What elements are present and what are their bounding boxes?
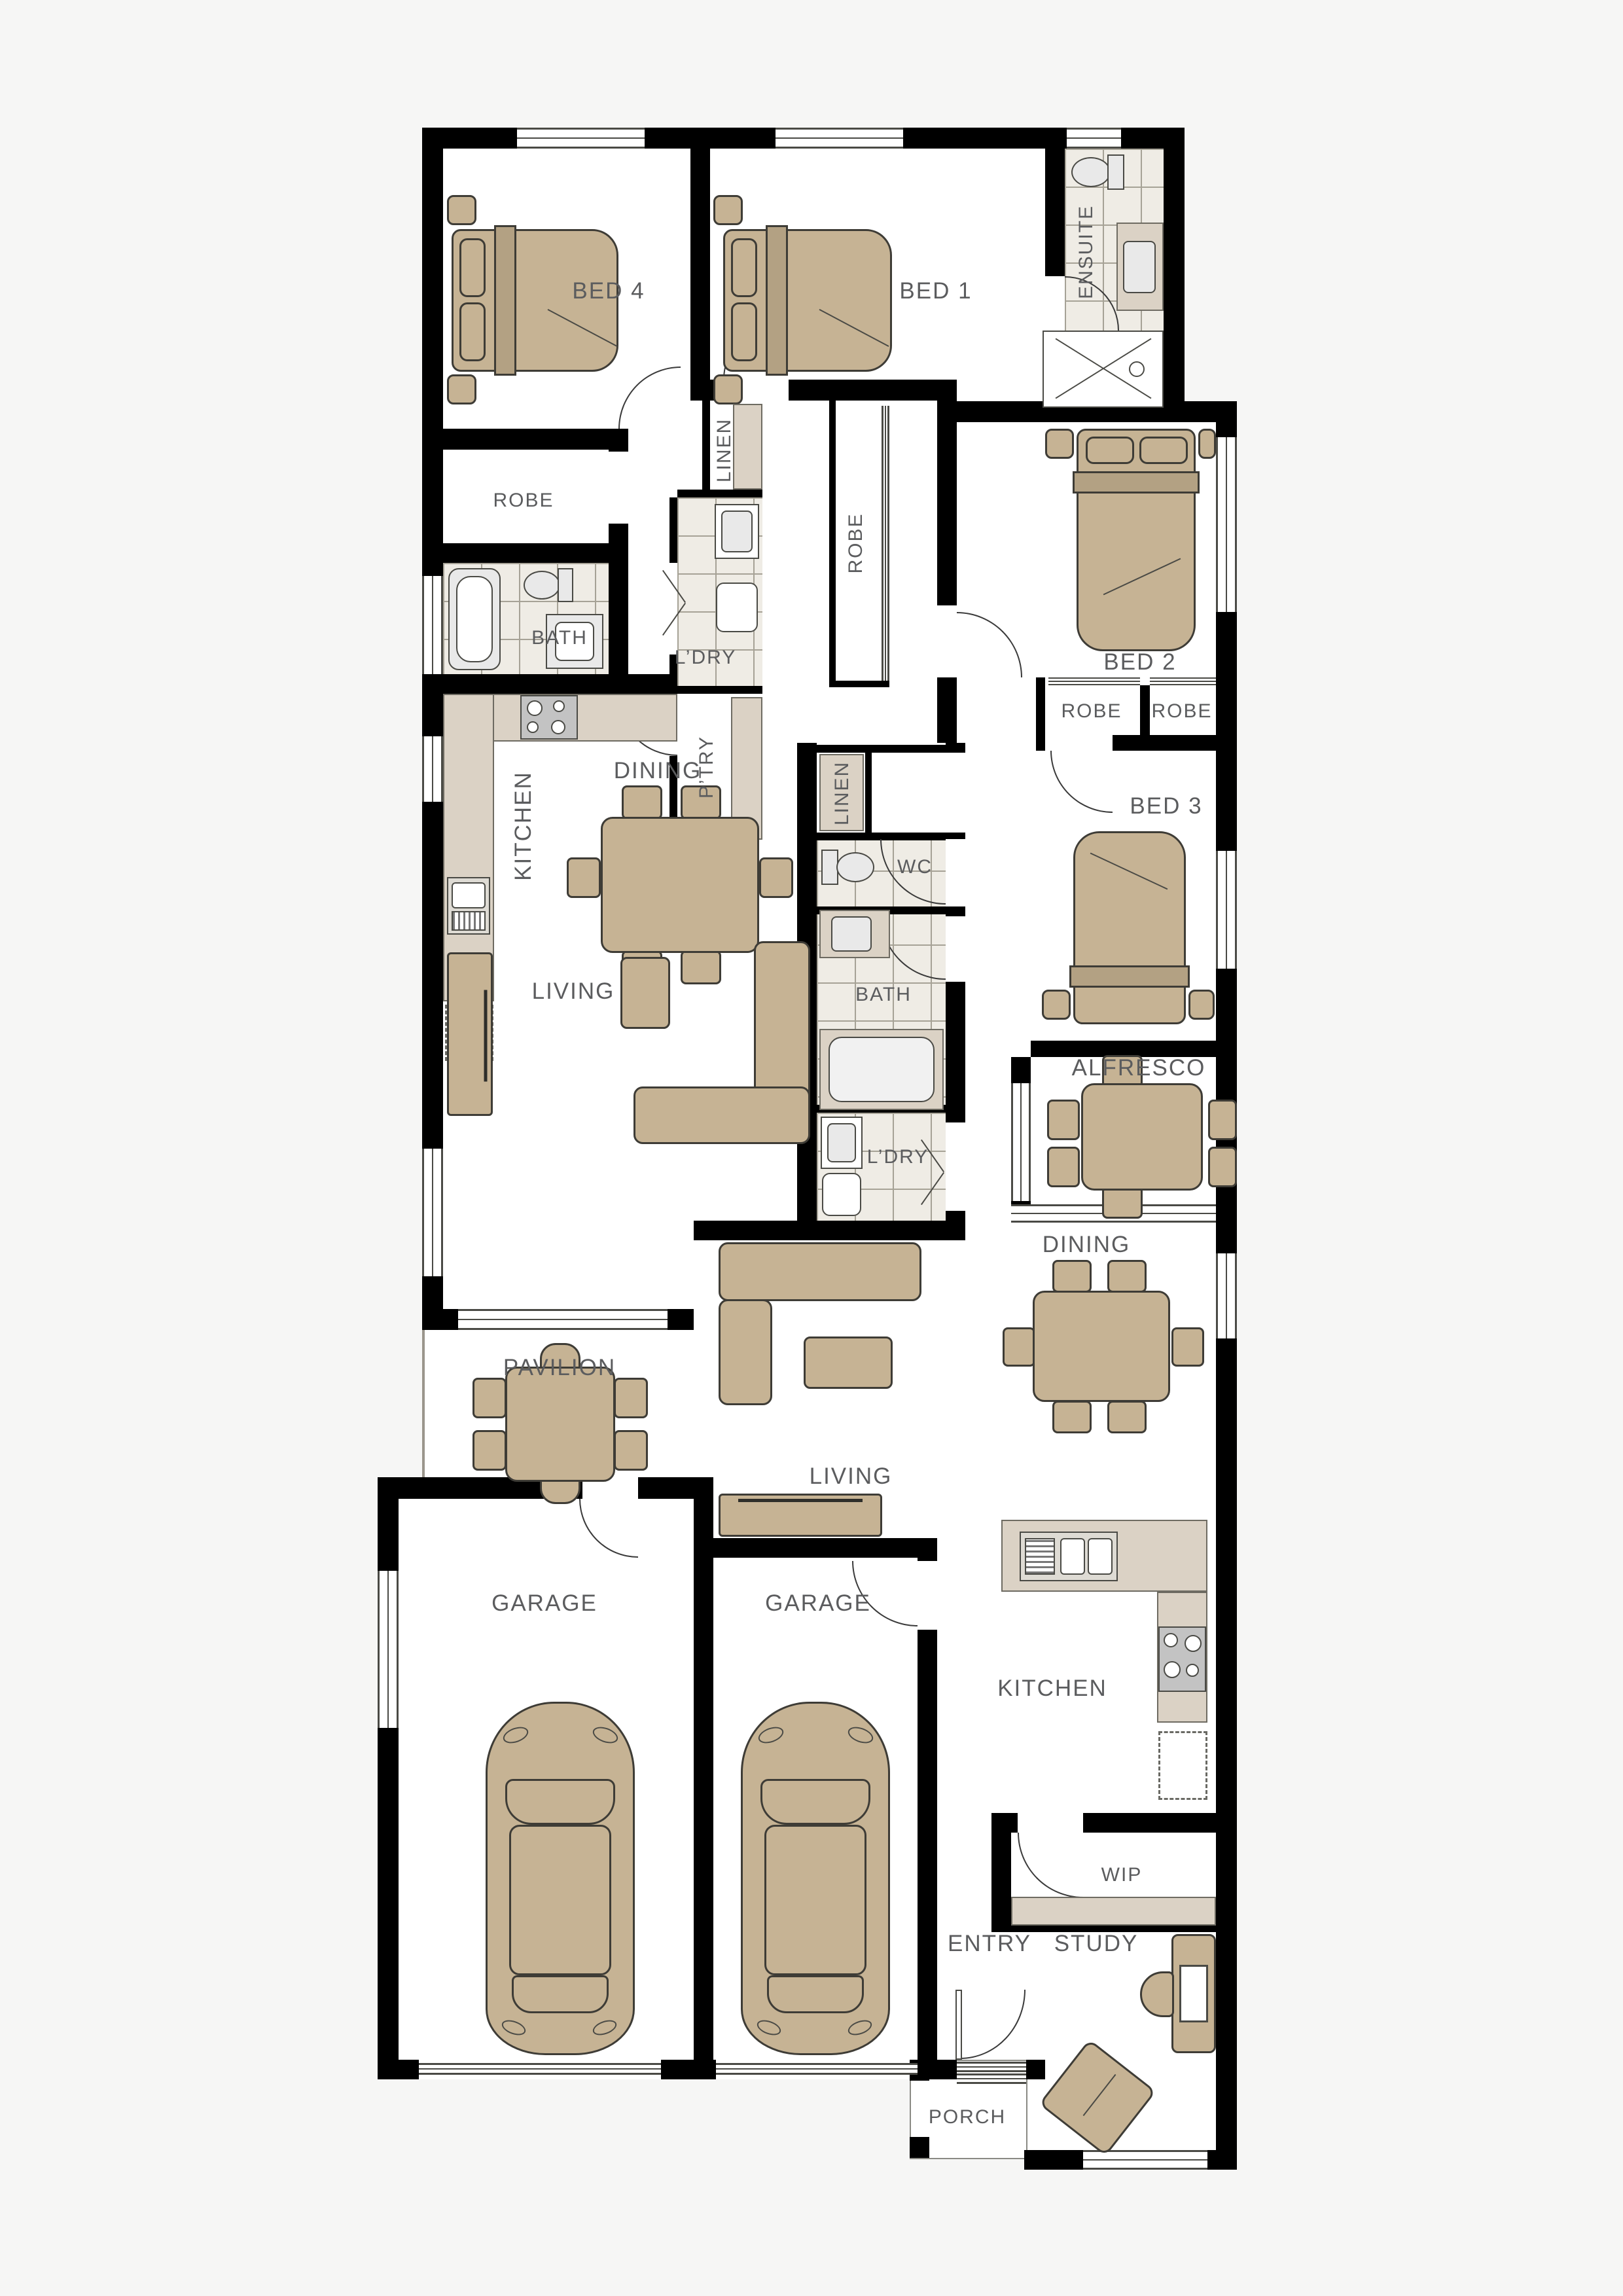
wall-robe1-bottom <box>829 681 889 687</box>
dining-b-chair-1 <box>1052 1260 1092 1293</box>
wc-toilet-bowl <box>836 852 874 882</box>
alfresco-chair-2 <box>1047 1100 1080 1140</box>
dining-a-chair-6 <box>759 857 793 898</box>
bed2-pillow-2 <box>1139 437 1188 464</box>
wall-robe-row-mid <box>1140 685 1150 735</box>
alfresco-chair-5 <box>1208 1147 1237 1187</box>
label-bed1: BED 1 <box>899 278 972 304</box>
robe1-sliding-door <box>882 406 889 681</box>
wall-bed2-left-2 <box>937 677 957 743</box>
dining-b-chair-5 <box>1003 1327 1035 1367</box>
living-a-ottoman <box>620 957 670 1029</box>
bed3-band <box>1069 965 1190 988</box>
pavilion-table <box>505 1367 615 1482</box>
car-a-rear <box>512 1975 609 2013</box>
ldry-a-washer-inner <box>721 511 753 552</box>
front-door-leaf <box>955 1990 962 2060</box>
wall-linen-a-bottom <box>677 490 762 497</box>
bed3-side-table-1 <box>1042 990 1071 1020</box>
wall-robe1-left <box>829 401 836 687</box>
wall-garage-party <box>694 1499 713 2079</box>
garage-a-window <box>378 1571 399 1728</box>
ensuite-window <box>1067 128 1121 149</box>
wall-hall-b-3 <box>946 906 965 916</box>
wall-bottom-b <box>1207 2150 1237 2170</box>
wall-hall-a-1 <box>609 429 628 452</box>
bed2-side-table-1 <box>1045 429 1074 459</box>
label-bed3: BED 3 <box>1130 793 1202 819</box>
wall-bed3-top <box>1113 735 1216 751</box>
pavilion-chair-1 <box>473 1378 507 1418</box>
wall-alfresco-left-1 <box>1011 1057 1031 1083</box>
kitchen-b-burner-3 <box>1164 1661 1181 1678</box>
label-wc: WC <box>897 856 933 878</box>
wall-entry-stub <box>1026 2060 1045 2079</box>
bed2-band <box>1073 471 1200 493</box>
bed2-side-table-2 <box>1198 429 1216 459</box>
kitchen-a-sink-basin <box>452 882 486 908</box>
kitchen-b-burner-4 <box>1186 1664 1199 1677</box>
label-robe-bed1: ROBE <box>845 512 867 573</box>
porch-pier-bottom <box>910 2137 929 2158</box>
kitchen-b-fridge-space <box>1158 1731 1207 1800</box>
label-wip: WIP <box>1101 1864 1143 1886</box>
robe2a-sliding-door <box>1048 677 1140 685</box>
label-ldry-b: L’DRY <box>867 1146 929 1168</box>
dining-b-chair-4 <box>1107 1401 1147 1433</box>
wall-wip-top-1 <box>991 1813 1018 1833</box>
wall-linen-b-top <box>817 745 946 753</box>
ensuite-toilet-bowl <box>1071 157 1111 187</box>
bath-a-toilet-tank <box>558 568 573 602</box>
pavilion-chair-3 <box>614 1378 648 1418</box>
label-bath-b: BATH <box>855 984 912 1006</box>
pavilion-edge-line <box>422 1330 425 1477</box>
wall-hall-b-2 <box>946 833 965 839</box>
kitchen-b-burner-1 <box>1164 1633 1178 1647</box>
pavilion-slider <box>458 1309 668 1330</box>
bath-a-window <box>422 576 443 674</box>
wall-garage-a-top-2 <box>638 1477 713 1499</box>
bed4-side-table-2 <box>447 374 476 404</box>
bed2-window <box>1216 437 1237 612</box>
label-bed2: BED 2 <box>1103 649 1176 675</box>
bath-a-tub-inner <box>456 576 493 662</box>
garage-b-door <box>716 2063 918 2075</box>
label-study: STUDY <box>1054 1931 1139 1957</box>
dining-b-chair-2 <box>1107 1260 1147 1293</box>
label-kitchen-b: KITCHEN <box>997 1676 1107 1702</box>
label-robe-bed2a: ROBE <box>1061 700 1122 723</box>
wip-shelf <box>1011 1897 1216 1926</box>
label-garage-b: GARAGE <box>765 1590 871 1617</box>
wall-wip-top-2 <box>1083 1813 1237 1833</box>
alfresco-window <box>1011 1083 1031 1201</box>
bed1-band <box>766 225 788 376</box>
label-robe-bed2b: ROBE <box>1151 700 1212 723</box>
wall-bed1-bottom-2 <box>789 380 937 401</box>
bed1-side-table-2 <box>713 374 743 404</box>
living-a-window <box>422 1149 443 1276</box>
label-ensuite: ENSUITE <box>1075 205 1097 299</box>
bed4-side-table-1 <box>447 195 476 225</box>
label-kitchen-a: KITCHEN <box>510 771 537 881</box>
study-monitor <box>1179 1965 1208 2022</box>
ensuite-basin <box>1123 241 1156 293</box>
car-a-roof <box>509 1825 611 1975</box>
bed1-side-table-1 <box>713 195 743 225</box>
wall-garage-b-right-1 <box>918 1538 937 1561</box>
garage-pier-left <box>378 2060 419 2079</box>
label-garage-a: GARAGE <box>491 1590 597 1617</box>
label-ldry-a: L’DRY <box>675 647 737 669</box>
kitchen-b-burner-2 <box>1185 1635 1202 1652</box>
wall-garage-b-top <box>713 1538 924 1558</box>
bed4-band <box>494 225 516 376</box>
garage-pier-mid <box>661 2060 716 2079</box>
bath-b-tub <box>829 1037 935 1102</box>
kitchen-b-sink-drainer <box>1025 1538 1055 1575</box>
wall-robe-row-left <box>1036 677 1045 751</box>
wall-living-pavilion-1 <box>422 1309 458 1330</box>
wall-hall-b-1 <box>946 743 965 753</box>
living-a-sofa-horiz <box>633 1086 810 1144</box>
ldry-b-tub <box>822 1173 861 1216</box>
wall-bottom-a <box>1024 2150 1083 2170</box>
car-b-rear <box>767 1975 864 2013</box>
ldry-a-tub <box>716 583 758 632</box>
wall-bed2-left-1 <box>937 380 957 605</box>
wall-living-pavilion-2 <box>668 1309 694 1330</box>
study-window <box>1083 2150 1207 2170</box>
kitchen-b-basin-2 <box>1088 1538 1113 1575</box>
kitchen-a-burner-2 <box>553 700 565 712</box>
wall-linen-a-left <box>702 401 710 497</box>
label-bed4: BED 4 <box>572 278 645 304</box>
kitchen-b-basin-1 <box>1060 1538 1085 1575</box>
alfresco-chair-4 <box>1208 1100 1237 1140</box>
ensuite-shower-rose <box>1129 361 1145 377</box>
living-b-chaise <box>719 1299 772 1405</box>
wall-wip-left <box>991 1833 1011 1924</box>
label-living-b: LIVING <box>810 1463 893 1490</box>
wall-garage-left-outer <box>378 1477 399 2079</box>
label-alfresco: ALFRESCO <box>1072 1055 1206 1081</box>
label-porch: PORCH <box>929 2106 1006 2128</box>
kitchen-a-window <box>422 736 443 802</box>
dining-b-chair-6 <box>1171 1327 1204 1367</box>
car-b-windshield <box>760 1779 870 1825</box>
alfresco-chair-3 <box>1047 1147 1080 1187</box>
label-linen-a: LINEN <box>713 418 736 482</box>
bath-a-toilet-bowl <box>524 571 560 600</box>
label-robe-bed4: ROBE <box>493 490 554 512</box>
label-dining-a: DINING <box>614 758 702 784</box>
kitchen-a-burner-3 <box>527 721 539 733</box>
label-dining-b: DINING <box>1043 1232 1131 1258</box>
entry-step-1 <box>957 2062 1026 2072</box>
wall-garage-b-right-2 <box>918 1630 937 2060</box>
pavilion-chair-2 <box>473 1430 507 1471</box>
bed3-window <box>1216 851 1237 969</box>
ensuite-toilet-tank <box>1107 154 1124 190</box>
bed4-pillow-2 <box>459 302 486 361</box>
pavilion-chair-4 <box>614 1430 648 1471</box>
bed3-side-table-2 <box>1188 990 1215 1020</box>
wall-hall-b-5 <box>946 1211 965 1221</box>
car-b-roof <box>764 1825 866 1975</box>
wall-ensuite-left <box>1045 149 1065 276</box>
wall-bath-kitchen-a <box>443 674 677 694</box>
dining-b-table <box>1033 1291 1170 1402</box>
garage-a-door <box>419 2063 661 2075</box>
robe2b-sliding-door <box>1150 677 1216 685</box>
dining-a-table <box>601 817 759 953</box>
dining-b-chair-3 <box>1052 1401 1092 1433</box>
wall-linen-b-right <box>865 753 872 833</box>
bed4-window <box>517 128 645 149</box>
wall-robe4-bath <box>443 543 609 563</box>
dining-a-chair-1 <box>622 785 662 819</box>
wall-hall-b-4 <box>946 982 965 1122</box>
bed4-pillow-1 <box>459 238 486 297</box>
kitchen-a-burner-1 <box>527 700 543 716</box>
living-b-ottoman <box>804 1336 893 1389</box>
entry-step-2 <box>957 2073 1026 2084</box>
alfresco-chair-6 <box>1102 1186 1143 1219</box>
wall-living-b-top <box>694 1221 965 1240</box>
label-pavilion: PAVILION <box>503 1355 616 1381</box>
living-b-tv-screen <box>738 1499 863 1502</box>
floor-plan: BED 4 BED 1 ENSUITE ROBE BATH LINEN L’DR… <box>0 0 1623 2296</box>
linen-a-shelf <box>733 404 762 490</box>
wall-hall-a-2 <box>609 524 628 694</box>
bed2-pillow-1 <box>1086 437 1134 464</box>
bed1-pillow-1 <box>731 238 757 297</box>
label-linen-b: LINEN <box>831 761 853 825</box>
wall-ensuite-right <box>1164 128 1185 422</box>
bed1-pillow-2 <box>731 302 757 361</box>
dining-a-chair-5 <box>567 857 601 898</box>
living-b-sofa <box>719 1242 921 1301</box>
living-a-tv-screen <box>484 990 488 1082</box>
dining-a-chair-4 <box>681 950 721 984</box>
kitchen-a-sink-drainer <box>452 911 486 931</box>
wall-ldry-a-left-1 <box>669 497 677 563</box>
alfresco-table <box>1081 1083 1203 1191</box>
label-living-a: LIVING <box>532 978 615 1005</box>
wall-ldry-ptry <box>677 686 762 694</box>
bed3-bed <box>1073 831 1186 1024</box>
car-a-windshield <box>505 1779 615 1825</box>
kitchen-a-burner-4 <box>551 720 565 734</box>
wall-bed4-bottom <box>443 429 628 450</box>
label-entry: ENTRY <box>948 1931 1031 1957</box>
ldry-b-washer-inner <box>827 1123 856 1162</box>
dining-b-window <box>1216 1253 1237 1338</box>
label-bath-a: BATH <box>531 627 588 649</box>
bath-b-basin <box>831 916 872 952</box>
wall-bed4-bed1 <box>690 149 710 401</box>
bed1-window <box>776 128 903 149</box>
